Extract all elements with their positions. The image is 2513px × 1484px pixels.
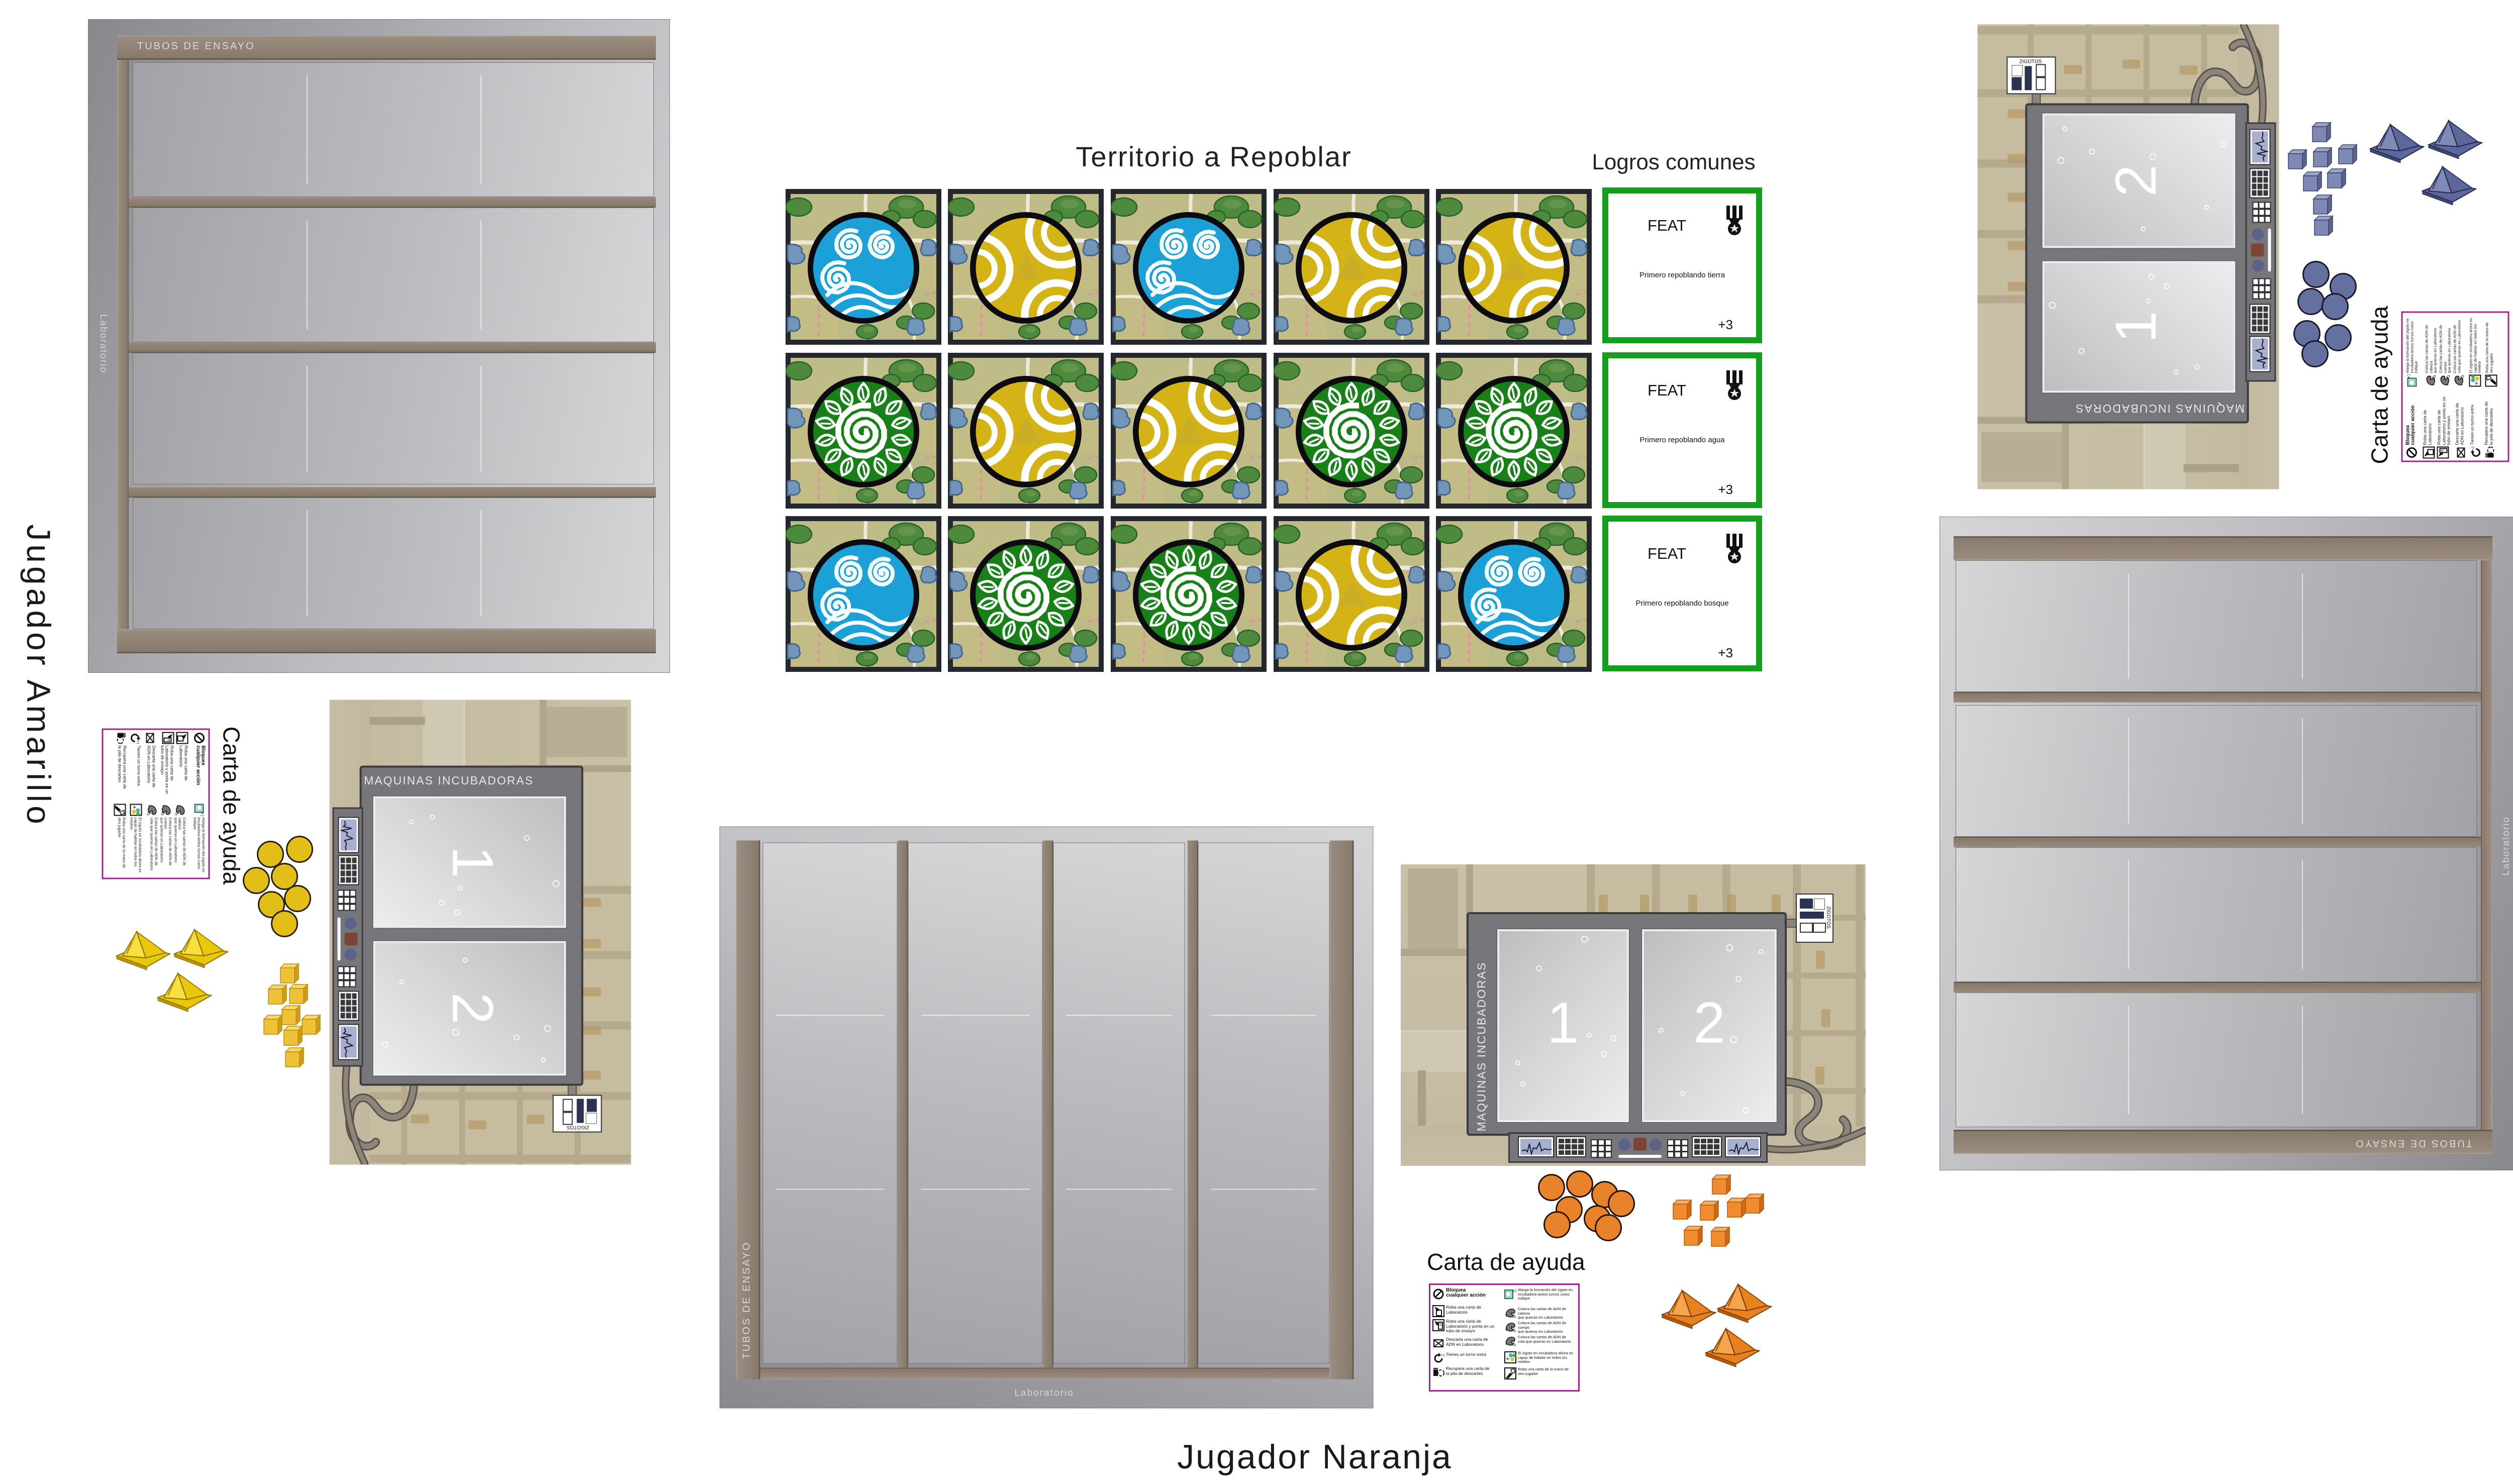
svg-text:+1: +1 — [1512, 1289, 1516, 1294]
svg-text:<4: <4 — [2462, 375, 2465, 379]
svg-text:<4: <4 — [2434, 375, 2437, 379]
svg-text:+1: +1 — [1441, 1354, 1444, 1357]
svg-text:+1: +1 — [2472, 447, 2475, 450]
svg-text:<4: <4 — [1512, 1344, 1516, 1347]
svg-text:<4: <4 — [174, 812, 178, 816]
svg-text:<4: <4 — [160, 812, 164, 816]
svg-text:<4: <4 — [1512, 1330, 1516, 1333]
svg-text:+1: +1 — [2406, 375, 2411, 379]
svg-text:<4: <4 — [1512, 1316, 1516, 1319]
svg-text:<4: <4 — [146, 812, 150, 816]
svg-text:<4: <4 — [2448, 375, 2451, 379]
svg-text:+1: +1 — [200, 812, 205, 816]
svg-text:+1: +1 — [136, 741, 140, 744]
